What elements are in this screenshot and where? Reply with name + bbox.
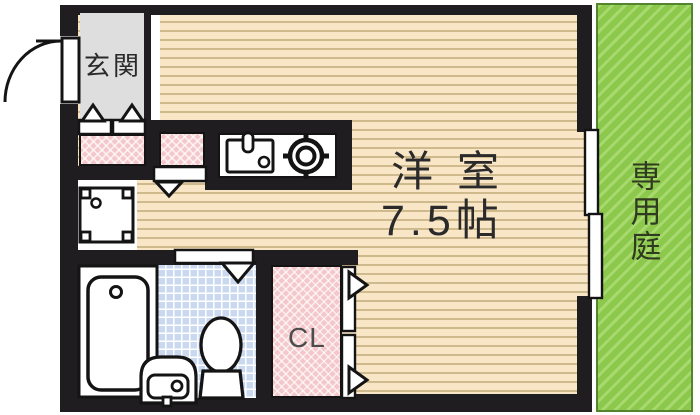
wall-right-lower: [577, 296, 592, 412]
kitchen-counter: [218, 133, 337, 178]
entrance-doorway-gap: [151, 15, 160, 120]
closet-label: CL: [288, 323, 326, 352]
front-door-opening: [60, 36, 78, 104]
entrance-label: 玄関: [84, 53, 142, 80]
storage-cabinet: [159, 132, 205, 167]
wall-bath-top: [60, 250, 358, 265]
bathroom-floor: [157, 265, 256, 398]
wall-right-upper: [577, 5, 592, 132]
main-room-size-label: 7.5帖: [381, 199, 504, 244]
shoe-cabinet: [79, 134, 146, 166]
wall-kitchen-bottom: [205, 177, 352, 190]
wall-bath-closet-divider: [256, 258, 272, 412]
wall-kitchen-right: [337, 120, 352, 190]
garden-label: 専用庭: [626, 160, 659, 265]
bathtub-zone: [78, 265, 157, 398]
floor-plan: 玄関 洋室 7.5帖 専用庭 CL: [0, 0, 700, 415]
wall-cabinet-bottom: [60, 166, 222, 180]
washer-nook: [78, 180, 137, 250]
main-room-name-label: 洋室: [391, 150, 523, 194]
